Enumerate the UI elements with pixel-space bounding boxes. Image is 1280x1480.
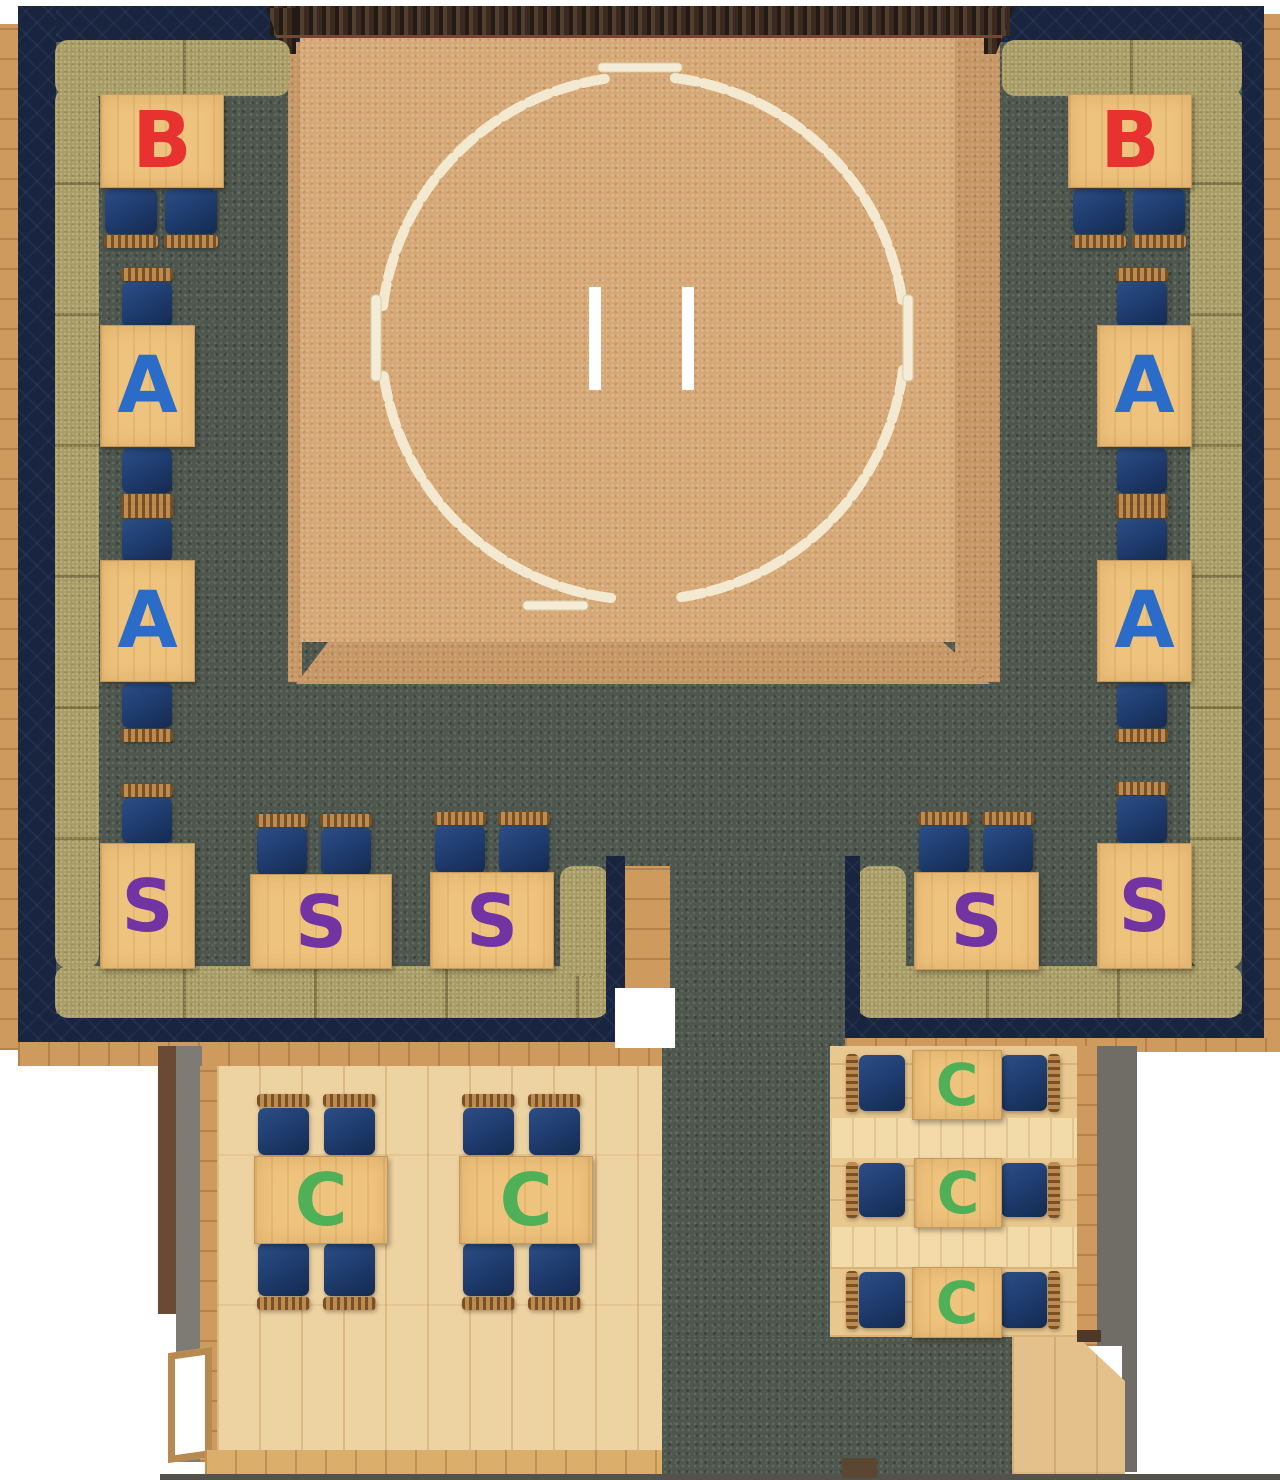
- seat-cushion: [1000, 1054, 1060, 1112]
- walkway-carpet-bottom: [662, 1337, 1012, 1474]
- chair-rail: [528, 1297, 581, 1310]
- bench-corner-left: [560, 866, 608, 976]
- cushion: [1117, 448, 1167, 493]
- seat-cushion: [846, 1054, 906, 1112]
- table-label: S: [122, 870, 174, 942]
- cushion: [1117, 683, 1167, 728]
- table-label: C: [295, 1164, 348, 1236]
- seat-cushion: [918, 812, 970, 874]
- table-c-room-right-1[interactable]: C: [912, 1050, 1002, 1120]
- bench-corner-right: [858, 866, 906, 976]
- table-s-bottom-left-1[interactable]: S: [250, 874, 392, 969]
- cushion: [122, 683, 172, 728]
- room-right-entry-trim: [1077, 1330, 1101, 1342]
- seat-cushion: [982, 812, 1034, 874]
- room-left-door-post: [158, 1046, 178, 1314]
- chair-rail: [121, 729, 173, 742]
- seat-cushion: [462, 1094, 515, 1156]
- chair-rail: [528, 1094, 581, 1107]
- seat-cushion: [121, 268, 173, 328]
- seat-cushion: [528, 1094, 581, 1156]
- seat-cushion: [1116, 782, 1168, 844]
- room-right-wall-trim: [1077, 1046, 1097, 1346]
- chair-rail: [320, 814, 372, 827]
- chair-rail: [1048, 1271, 1060, 1329]
- chair-rail: [846, 1162, 858, 1218]
- cushion: [529, 1243, 580, 1296]
- seat-cushion: [257, 1094, 310, 1156]
- chair-rail: [846, 1271, 858, 1329]
- cushion: [122, 448, 172, 493]
- seat-cushion: [1116, 682, 1168, 742]
- tokudawara-bales: [371, 63, 913, 610]
- cushion: [258, 1243, 309, 1296]
- seat-cushion: [1116, 447, 1168, 507]
- cushion: [1073, 189, 1125, 234]
- cushion: [105, 189, 157, 234]
- cushion: [1001, 1055, 1047, 1111]
- cushion: [1001, 1163, 1047, 1217]
- wood-frame-right: [1264, 14, 1280, 1050]
- cushion: [529, 1108, 580, 1155]
- cushion: [324, 1243, 375, 1296]
- table-label: S: [295, 886, 347, 958]
- cushion: [859, 1272, 905, 1328]
- room-right-wall: [1097, 1046, 1137, 1346]
- table-label: B: [132, 102, 191, 180]
- seat-cushion: [498, 812, 550, 874]
- table-label: S: [466, 885, 518, 957]
- cushion: [1117, 796, 1167, 843]
- table-label: C: [937, 1164, 980, 1222]
- seat-cushion: [434, 812, 486, 874]
- seat-cushion: [320, 814, 372, 876]
- bench-top-left: [55, 40, 290, 96]
- room-left-entry-step: [205, 1450, 662, 1476]
- cushion: [324, 1108, 375, 1155]
- table-label: A: [117, 582, 177, 660]
- navy-doorway-right: [845, 856, 860, 1042]
- chair-rail: [257, 1094, 310, 1107]
- doorway-white-box: [615, 988, 675, 1048]
- table-label: A: [1114, 347, 1174, 425]
- table-s-bottom-left-2[interactable]: S: [430, 872, 554, 969]
- bottom-edge-strip: [160, 1474, 1280, 1480]
- room-right-band-2: [830, 1227, 1077, 1267]
- chair-rail: [257, 1297, 310, 1310]
- table-label: B: [1100, 102, 1159, 180]
- bench-bottom-right: [858, 966, 1242, 1018]
- table-a-right-1[interactable]: A: [1097, 325, 1192, 447]
- cushion: [1001, 1272, 1047, 1328]
- seat-cushion: [1072, 188, 1126, 248]
- cushion: [859, 1055, 905, 1111]
- table-s-bottom-right-1[interactable]: S: [914, 872, 1039, 970]
- table-c-room-left-1[interactable]: C: [254, 1156, 388, 1244]
- roof-awning: [270, 6, 1010, 36]
- table-c-room-left-2[interactable]: C: [459, 1156, 593, 1244]
- chair-rail: [918, 812, 970, 825]
- cushion: [983, 826, 1033, 873]
- chair-rail: [104, 235, 158, 248]
- seat-cushion: [846, 1162, 906, 1218]
- chair-rail: [121, 268, 173, 281]
- cushion: [1133, 189, 1185, 234]
- cushion: [463, 1108, 514, 1155]
- seat-cushion: [104, 188, 158, 248]
- room-right-entry-floor: [1012, 1337, 1125, 1474]
- chair-rail: [434, 812, 486, 825]
- wood-sill-bottom-left: [18, 1042, 662, 1066]
- seat-cushion: [164, 188, 218, 248]
- table-c-room-right-3[interactable]: C: [912, 1267, 1002, 1338]
- table-s-bottom-right-2[interactable]: S: [1097, 843, 1192, 969]
- seat-cushion: [121, 505, 173, 563]
- chair-rail: [846, 1054, 858, 1112]
- bench-right: [1190, 88, 1242, 968]
- cushion: [1117, 282, 1167, 327]
- seat-cushion: [462, 1242, 515, 1310]
- seat-cushion: [121, 447, 173, 507]
- walkway-bottom-post: [842, 1458, 877, 1478]
- chair-rail: [1048, 1054, 1060, 1112]
- table-a-right-2[interactable]: A: [1097, 560, 1192, 682]
- navy-wall-top-left: [18, 6, 300, 42]
- table-c-room-right-2[interactable]: C: [914, 1158, 1002, 1228]
- seat-cushion: [323, 1094, 376, 1156]
- chair-rail: [1116, 268, 1168, 281]
- chair-rail: [1132, 235, 1186, 248]
- room-left-door-panel: [168, 1347, 212, 1463]
- walkway-carpet-mid: [662, 1046, 830, 1341]
- chair-rail: [1116, 505, 1168, 518]
- table-label: S: [1119, 870, 1171, 942]
- seat-cushion: [528, 1242, 581, 1310]
- roof-edge-line: [276, 35, 1002, 38]
- cushion: [435, 826, 485, 873]
- chair-rail: [256, 814, 308, 827]
- chair-rail: [323, 1094, 376, 1107]
- cushion: [165, 189, 217, 234]
- chair-rail: [462, 1094, 515, 1107]
- cushion: [122, 519, 172, 562]
- chair-rail: [982, 812, 1034, 825]
- seat-cushion: [323, 1242, 376, 1310]
- seat-cushion: [1116, 505, 1168, 563]
- navy-wall-right: [1242, 6, 1264, 1046]
- table-b-right[interactable]: B: [1068, 94, 1192, 188]
- doorway-post: [625, 866, 670, 990]
- seat-cushion: [121, 682, 173, 742]
- table-label: C: [936, 1274, 979, 1332]
- chair-rail: [121, 784, 173, 797]
- table-s-left[interactable]: S: [100, 843, 195, 969]
- table-label: C: [500, 1164, 553, 1236]
- seat-cushion: [1000, 1271, 1060, 1329]
- seat-cushion: [1132, 188, 1186, 248]
- table-label: S: [951, 885, 1003, 957]
- table-label: C: [936, 1056, 979, 1114]
- shikirisen-lines: [589, 287, 694, 390]
- bench-left: [55, 88, 99, 968]
- seat-cushion: [846, 1271, 906, 1329]
- chair-rail: [462, 1297, 515, 1310]
- chair-rail: [1072, 235, 1126, 248]
- chair-rail: [323, 1297, 376, 1310]
- seat-cushion: [256, 814, 308, 876]
- cushion: [257, 828, 307, 875]
- chair-rail: [164, 235, 218, 248]
- navy-wall-top-right: [985, 6, 1262, 42]
- cushion: [1117, 519, 1167, 562]
- table-b-left[interactable]: B: [100, 94, 224, 188]
- cushion: [122, 282, 172, 327]
- table-a-left-1[interactable]: A: [100, 325, 195, 447]
- table-label: A: [117, 347, 177, 425]
- cushion: [321, 828, 371, 875]
- chair-rail: [121, 505, 173, 518]
- seat-cushion: [1116, 268, 1168, 328]
- dohyo-ring: [297, 28, 997, 688]
- navy-wall-left: [18, 6, 56, 1046]
- bench-bottom-left: [55, 966, 608, 1018]
- cushion: [122, 798, 172, 843]
- chair-rail: [1116, 729, 1168, 742]
- cushion: [919, 826, 969, 873]
- chair-rail: [1048, 1162, 1060, 1218]
- room-right-band-1: [830, 1118, 1077, 1158]
- table-label: A: [1114, 582, 1174, 660]
- cushion: [463, 1243, 514, 1296]
- table-a-left-2[interactable]: A: [100, 560, 195, 682]
- chair-rail: [1116, 782, 1168, 795]
- wood-frame-left: [0, 24, 18, 1050]
- cushion: [859, 1163, 905, 1217]
- floor-plan: B A A S S S S S B A A C C C C C: [0, 0, 1280, 1480]
- cushion: [499, 826, 549, 873]
- chair-rail: [498, 812, 550, 825]
- seat-cushion: [1000, 1162, 1060, 1218]
- navy-wall-bottom-left: [18, 1014, 625, 1042]
- cushion: [258, 1108, 309, 1155]
- seat-cushion: [257, 1242, 310, 1310]
- seat-cushion: [121, 784, 173, 844]
